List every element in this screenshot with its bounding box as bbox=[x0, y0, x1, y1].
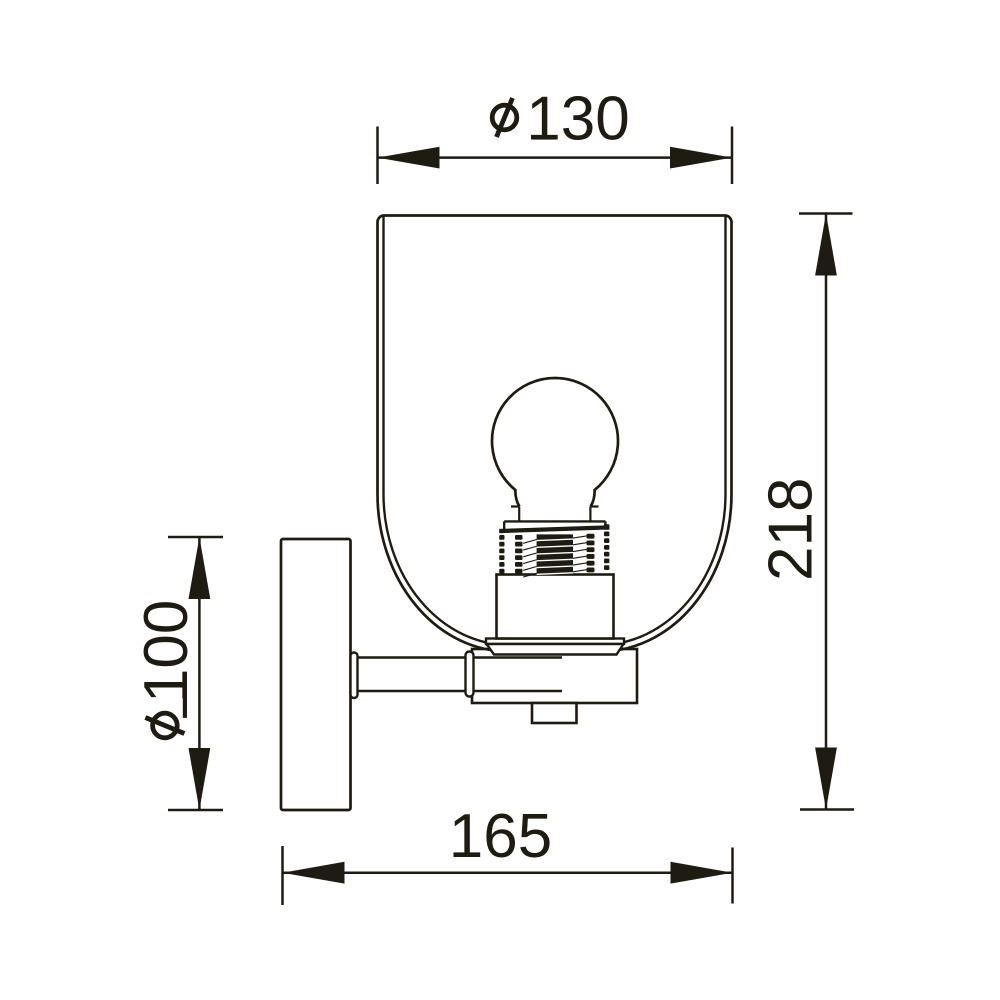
svg-text:165: 165 bbox=[449, 802, 552, 871]
svg-text:100: 100 bbox=[132, 600, 201, 703]
svg-text:218: 218 bbox=[757, 478, 826, 581]
svg-text:130: 130 bbox=[526, 85, 629, 154]
